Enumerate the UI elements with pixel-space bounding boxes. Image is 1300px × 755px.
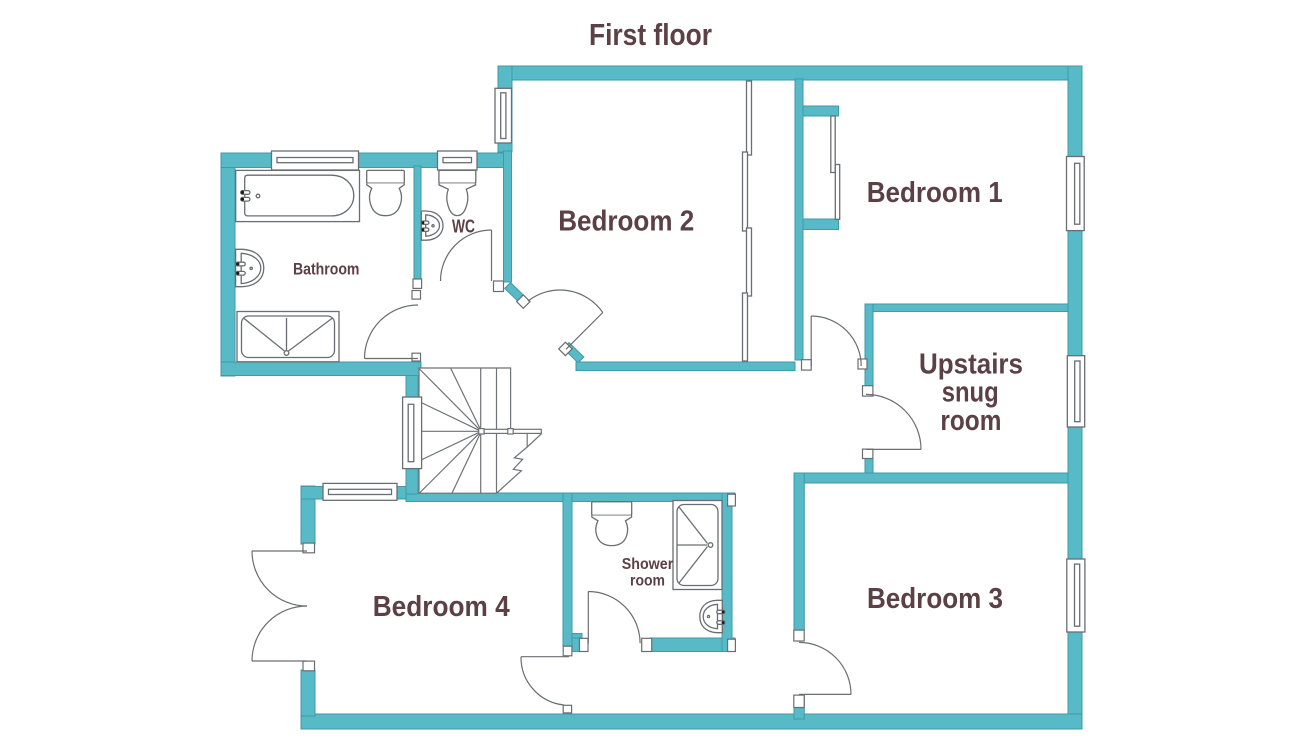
svg-text:First floor: First floor bbox=[589, 18, 712, 52]
svg-text:Bedroom 2: Bedroom 2 bbox=[558, 206, 694, 238]
svg-text:Bathroom: Bathroom bbox=[293, 260, 360, 279]
svg-text:WC: WC bbox=[452, 215, 475, 236]
svg-text:room: room bbox=[940, 405, 1001, 437]
svg-text:Bedroom 1: Bedroom 1 bbox=[867, 177, 1003, 209]
svg-text:snug: snug bbox=[942, 377, 999, 409]
svg-text:Bedroom 4: Bedroom 4 bbox=[373, 591, 510, 623]
svg-text:Shower: Shower bbox=[622, 556, 674, 573]
svg-text:room: room bbox=[630, 573, 665, 590]
svg-text:Bedroom 3: Bedroom 3 bbox=[867, 583, 1003, 615]
